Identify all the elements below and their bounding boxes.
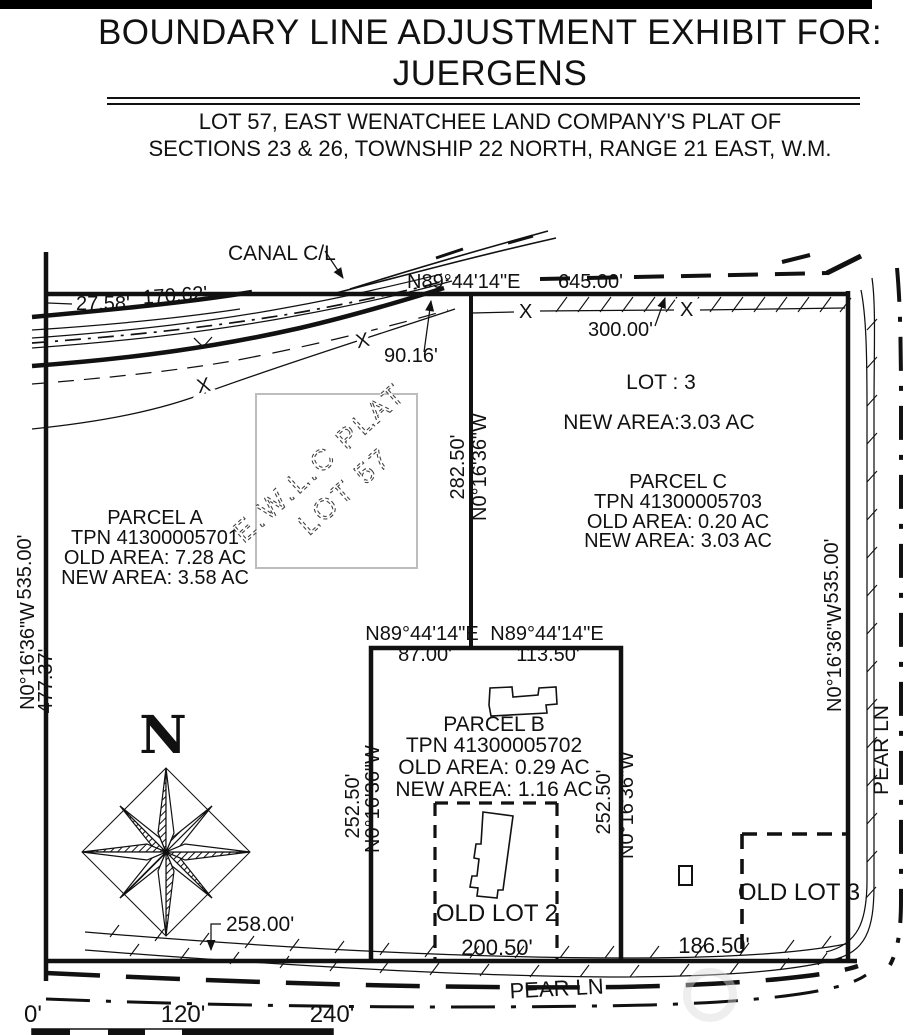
old-lot-3-label: OLD LOT 3 bbox=[738, 879, 860, 906]
pear-ln-right-label: PEAR LN bbox=[870, 705, 893, 795]
scale-tick-0: 0' bbox=[24, 1001, 42, 1028]
parcel-a-block: PARCEL A TPN 41300005701 OLD AREA: 7.28 … bbox=[61, 507, 249, 589]
exhibit-page: BOUNDARY LINE ADJUSTMENT EXHIBIT FOR: JU… bbox=[0, 0, 910, 1035]
dim-pb-east-252: 252.50' bbox=[593, 770, 615, 835]
dim-divider-bearing: N0°16'36"W bbox=[469, 413, 491, 521]
dim-canal-east: 90.16' bbox=[384, 345, 438, 367]
dim-west-477: 477.37' bbox=[35, 649, 57, 714]
pb-top-east-bearing: N89°44'14"E bbox=[490, 623, 603, 645]
dim-west-535: 535.00' bbox=[14, 535, 36, 600]
parcel-c-block: PARCEL C TPN 41300005703 OLD AREA: 0.20 … bbox=[584, 471, 772, 552]
parcel-a-tpn: TPN 41300005701 bbox=[71, 527, 239, 549]
plat-watermark: E.W.L.C PLAT LOT 57 bbox=[227, 377, 438, 577]
dim-divider-distance: 282.50' bbox=[447, 435, 469, 500]
lot3-new-area: NEW AREA:3.03 AC bbox=[563, 411, 754, 434]
parcel-a-new-area: NEW AREA: 3.58 AC bbox=[61, 567, 249, 589]
old-lot-2-label: OLD LOT 2 bbox=[436, 900, 558, 927]
dim-bottom-west: 258.00' bbox=[226, 913, 294, 936]
parcel-b-block: PARCEL B TPN 41300005702 OLD AREA: 0.29 … bbox=[395, 713, 592, 801]
dim-east-bearing: N0°16'36"W bbox=[824, 604, 846, 712]
scale-tick-240: 240' bbox=[310, 1001, 355, 1028]
fence-x-mark-1: X bbox=[519, 301, 532, 323]
pb-top-west-bearing: N89°44'14"E bbox=[365, 623, 478, 645]
parcel-b-new-area: NEW AREA: 1.16 AC bbox=[395, 778, 592, 801]
well-symbol bbox=[679, 866, 692, 885]
parcel-b-old-area: OLD AREA: 0.29 AC bbox=[398, 756, 589, 779]
dim-top-distance: 645.00' bbox=[558, 271, 623, 293]
dim-pb-top-west: 87.00' bbox=[398, 644, 452, 666]
parcel-a-old-area: OLD AREA: 7.28 AC bbox=[64, 547, 246, 569]
dim-old-lot2-width: 200.50' bbox=[461, 935, 533, 960]
fence-x-mark-4: X bbox=[195, 374, 213, 398]
parcel-b-name: PARCEL B bbox=[443, 713, 545, 736]
scale-tick-120: 120' bbox=[161, 1001, 206, 1028]
lot3-name: LOT : 3 bbox=[626, 371, 696, 394]
parcel-c-new-area: NEW AREA: 3.03 AC bbox=[584, 530, 772, 552]
dim-pb-top-east: 113.50' bbox=[516, 644, 580, 666]
survey-map: E.W.L.C PLAT LOT 57 N bbox=[0, 0, 910, 1035]
north-arrow: N bbox=[82, 705, 250, 936]
parcel-b-tpn: TPN 41300005702 bbox=[406, 734, 582, 757]
dim-pb-west-bearing: N0°16'36"W bbox=[362, 745, 384, 853]
canal-centerline-label: CANAL C/L bbox=[228, 242, 336, 265]
fence-x-mark-2: X bbox=[680, 299, 693, 321]
dim-pb-west-252: 252.50' bbox=[342, 774, 364, 839]
parcel-a-name: PARCEL A bbox=[107, 507, 203, 529]
dim-east-535: 535.00' bbox=[821, 539, 843, 604]
dim-old-lot3-width: 186.50' bbox=[678, 933, 750, 958]
dim-canal-offset: 27.58' bbox=[76, 293, 130, 315]
parcel-c-tpn: TPN 41300005703 bbox=[594, 491, 762, 513]
dim-canal-frontage: 170.62' bbox=[142, 283, 208, 309]
canal-lines bbox=[32, 231, 810, 429]
fence-x-mark-3: X bbox=[354, 329, 372, 353]
dim-fence-300: 300.00' bbox=[588, 319, 653, 341]
dim-top-bearing: N89°44'14"E bbox=[407, 271, 520, 293]
parcel-c-name: PARCEL C bbox=[629, 471, 727, 493]
photo-watermark-circle bbox=[687, 972, 733, 1018]
dim-pb-east-bearing: N0°16'36"W bbox=[616, 751, 638, 859]
north-letter: N bbox=[139, 705, 187, 766]
pear-ln-bottom-label: PEAR LN bbox=[509, 974, 604, 1004]
